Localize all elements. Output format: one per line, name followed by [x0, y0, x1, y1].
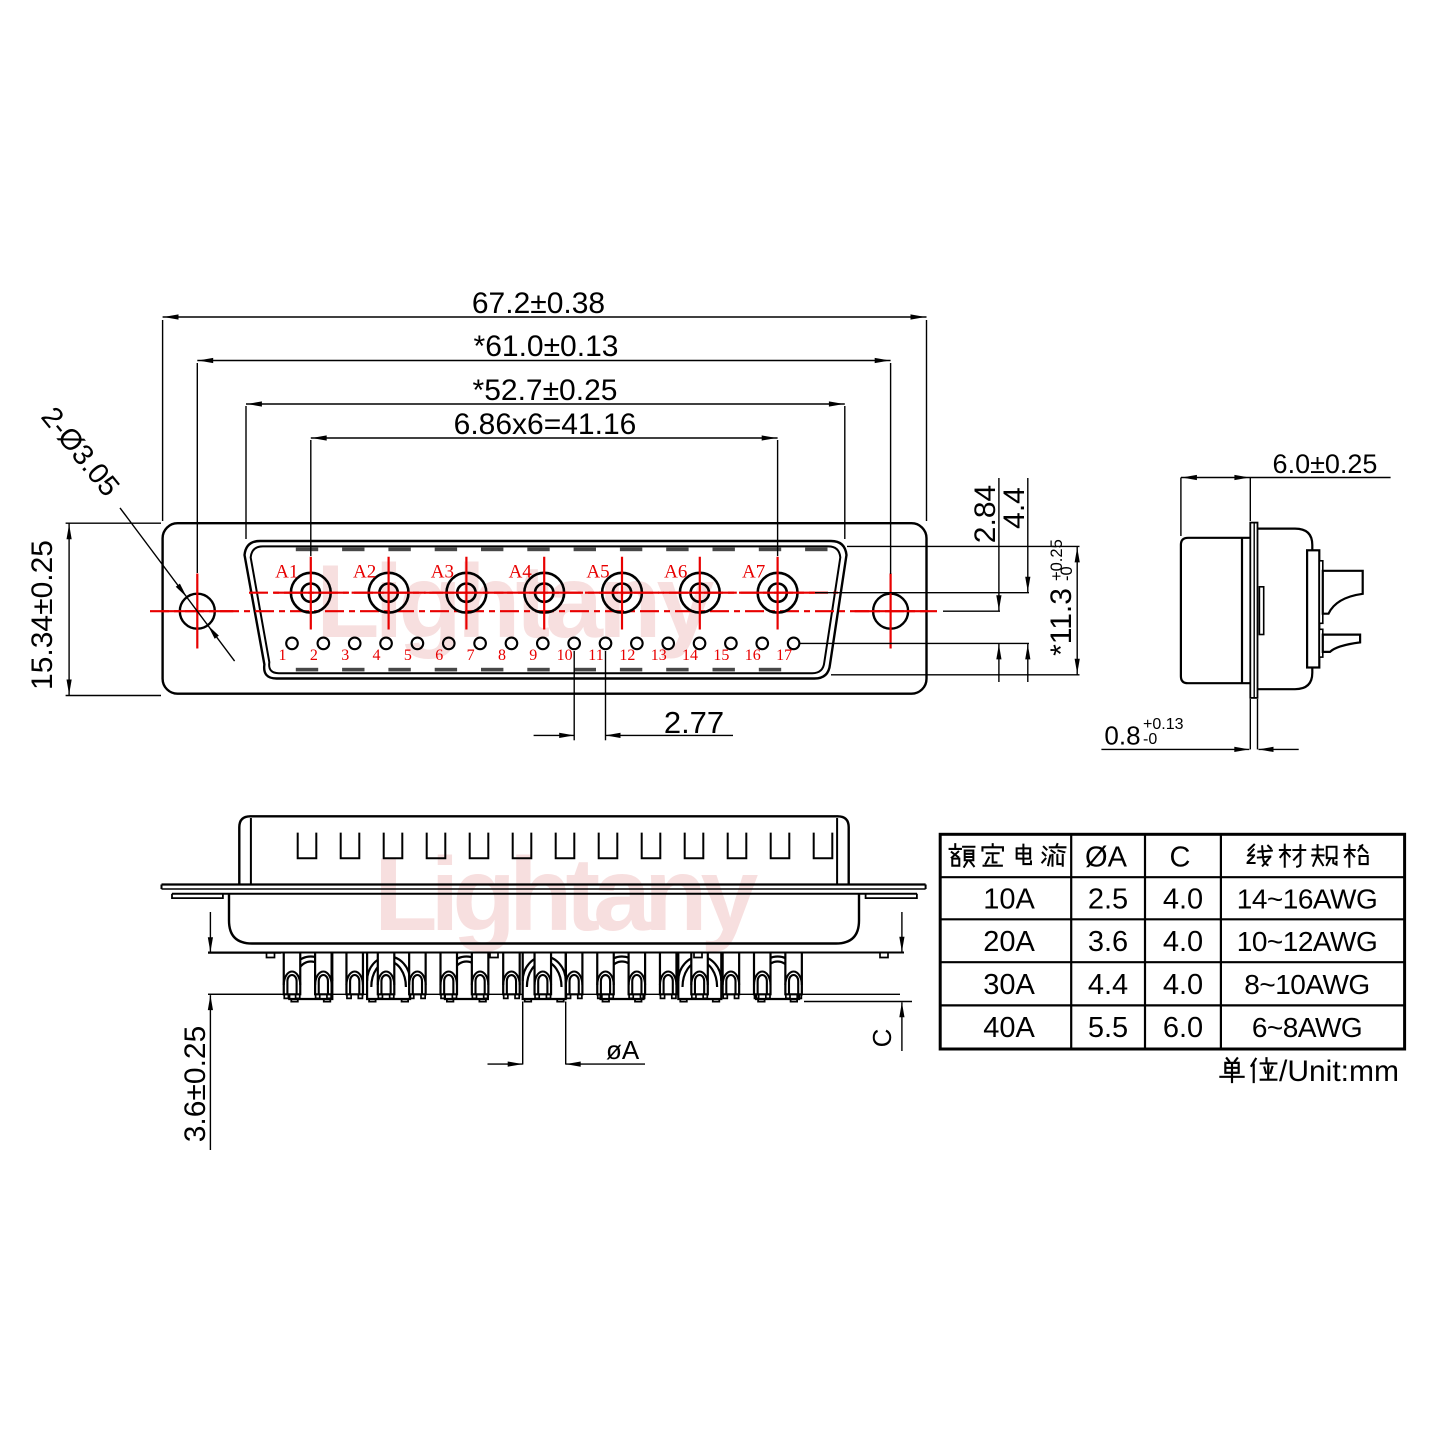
- svg-text:C: C: [867, 1029, 897, 1048]
- svg-text:14~16AWG: 14~16AWG: [1237, 883, 1377, 914]
- svg-text:8: 8: [498, 647, 506, 664]
- svg-text:*52.7±0.25: *52.7±0.25: [473, 374, 618, 407]
- svg-text:8~10AWG: 8~10AWG: [1244, 969, 1369, 1000]
- svg-text:9: 9: [529, 647, 537, 664]
- svg-text:2.5: 2.5: [1088, 883, 1128, 915]
- svg-text:16: 16: [745, 647, 761, 664]
- svg-text:10A: 10A: [983, 883, 1035, 915]
- svg-text:A4: A4: [509, 562, 533, 583]
- svg-text:12: 12: [619, 647, 635, 664]
- svg-text:14: 14: [682, 647, 698, 664]
- svg-text:4.0: 4.0: [1163, 883, 1203, 915]
- svg-text:20A: 20A: [983, 926, 1035, 958]
- svg-text:5.5: 5.5: [1088, 1012, 1128, 1044]
- svg-text:A6: A6: [664, 562, 687, 583]
- svg-text:5: 5: [404, 647, 412, 664]
- svg-text:30A: 30A: [983, 969, 1035, 1001]
- svg-text:10~12AWG: 10~12AWG: [1237, 926, 1377, 957]
- svg-text:4.0: 4.0: [1163, 926, 1203, 958]
- svg-text:4.4: 4.4: [1088, 969, 1128, 1001]
- svg-text:A3: A3: [431, 562, 454, 583]
- svg-text:A1: A1: [275, 562, 298, 583]
- svg-text:-0: -0: [1058, 566, 1076, 581]
- svg-text:2: 2: [310, 647, 318, 664]
- svg-text:3.6±0.25: 3.6±0.25: [179, 1026, 212, 1143]
- svg-text:11: 11: [588, 647, 603, 664]
- svg-text:4.4: 4.4: [998, 487, 1031, 529]
- svg-text:A7: A7: [742, 562, 765, 583]
- svg-text:10: 10: [557, 647, 573, 664]
- svg-text:67.2±0.38: 67.2±0.38: [472, 287, 605, 320]
- svg-text:*11.3: *11.3: [1045, 588, 1078, 656]
- svg-text:0.8: 0.8: [1104, 720, 1140, 750]
- svg-text:6.0: 6.0: [1163, 1012, 1203, 1044]
- svg-text:øA: øA: [606, 1035, 640, 1065]
- svg-text:13: 13: [651, 647, 667, 664]
- svg-text:Lightany: Lightany: [374, 837, 758, 953]
- svg-text:/Unit:mm: /Unit:mm: [1279, 1055, 1399, 1088]
- svg-text:6.86x6=41.16: 6.86x6=41.16: [454, 408, 637, 441]
- svg-text:-0: -0: [1143, 731, 1157, 748]
- svg-text:17: 17: [776, 647, 792, 664]
- svg-text:A2: A2: [353, 562, 376, 583]
- svg-text:15.34±0.25: 15.34±0.25: [26, 540, 59, 690]
- svg-text:1: 1: [279, 647, 287, 664]
- svg-text:2.77: 2.77: [664, 705, 724, 740]
- svg-text:ØA: ØA: [1085, 842, 1128, 874]
- svg-text:15: 15: [713, 647, 729, 664]
- svg-text:A5: A5: [586, 562, 609, 583]
- svg-text:C: C: [1170, 842, 1191, 874]
- svg-text:3: 3: [341, 647, 349, 664]
- svg-text:6: 6: [435, 647, 443, 664]
- svg-text:*61.0±0.13: *61.0±0.13: [474, 330, 619, 363]
- svg-text:6~8AWG: 6~8AWG: [1252, 1012, 1362, 1043]
- svg-text:4: 4: [373, 647, 381, 664]
- svg-text:3.6: 3.6: [1088, 926, 1128, 958]
- svg-text:4.0: 4.0: [1163, 969, 1203, 1001]
- svg-text:7: 7: [467, 647, 475, 664]
- svg-text:40A: 40A: [983, 1012, 1035, 1044]
- svg-text:6.0±0.25: 6.0±0.25: [1273, 449, 1378, 479]
